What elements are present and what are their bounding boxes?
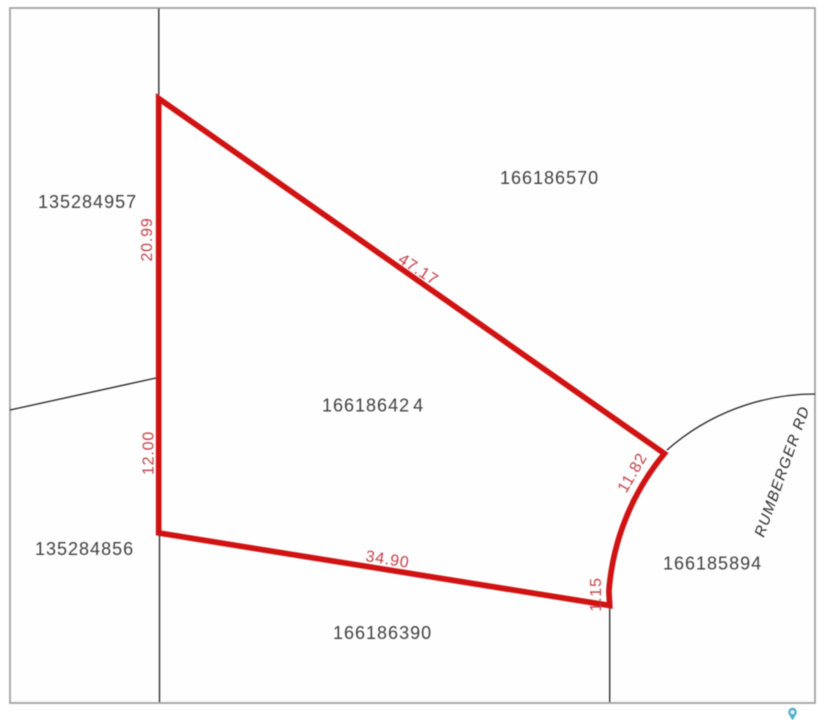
svg-text:135284856: 135284856 bbox=[35, 539, 134, 559]
svg-text:166186390: 166186390 bbox=[333, 623, 432, 643]
svg-text:166186424: 166186424 bbox=[322, 396, 424, 416]
svg-text:12.00: 12.00 bbox=[141, 431, 158, 475]
svg-text:166186570: 166186570 bbox=[500, 168, 599, 188]
svg-text:20.99: 20.99 bbox=[139, 217, 156, 261]
svg-text:135284957: 135284957 bbox=[38, 192, 137, 212]
svg-text:166185894: 166185894 bbox=[663, 554, 762, 574]
svg-text:1.15: 1.15 bbox=[588, 577, 605, 611]
